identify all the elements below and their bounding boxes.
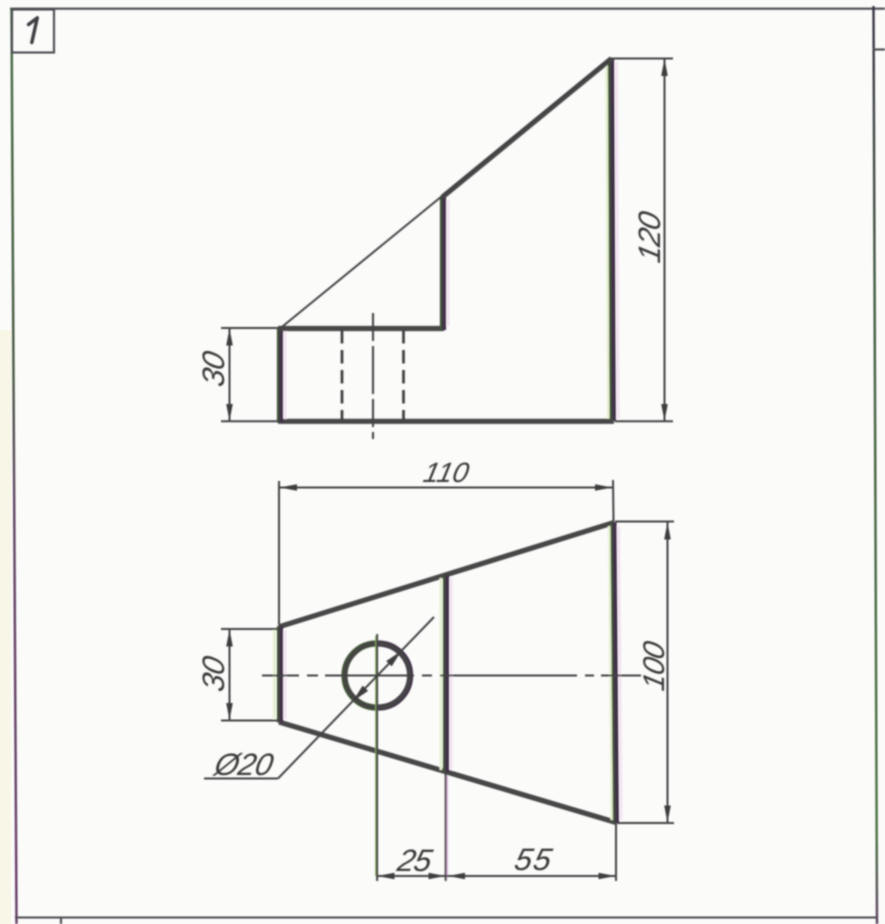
svg-text:100: 100 <box>638 638 671 693</box>
svg-text:Ø20: Ø20 <box>211 747 277 782</box>
svg-text:110: 110 <box>421 456 473 488</box>
svg-text:55: 55 <box>512 842 557 877</box>
svg-text:120: 120 <box>632 208 667 266</box>
